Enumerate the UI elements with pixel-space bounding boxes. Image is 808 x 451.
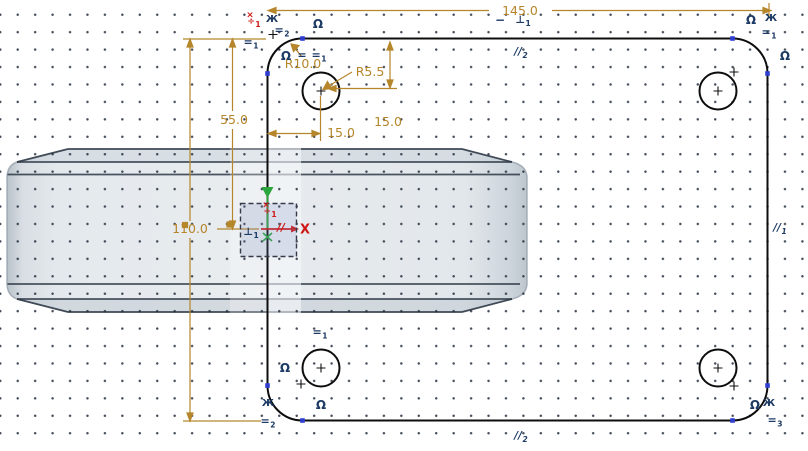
constraint-parallel-x-axis-icon[interactable]: // (277, 223, 285, 234)
x-axis-label[interactable]: X (300, 224, 310, 237)
constraint-tangent-icon[interactable]: Ω (313, 18, 323, 30)
constraint-symmetry-icon[interactable]: Ж (765, 14, 777, 24)
constraint-equal-icon[interactable]: = (297, 50, 306, 61)
constraint-parallel-icon[interactable]: //1 (773, 223, 786, 236)
constraint-horizontal-icon[interactable]: − (495, 14, 505, 26)
constraint-tangent-icon[interactable]: Ω (750, 399, 760, 411)
constraint-equal-icon[interactable]: =1 (244, 36, 259, 50)
constraint-parallel-icon[interactable]: //2 (514, 47, 527, 60)
constraint-equal-icon[interactable]: =2 (275, 24, 290, 38)
constraint-perpendicular-icon[interactable]: ⊥1 (515, 15, 530, 28)
constraint-symmetry-icon[interactable]: Ж (763, 399, 775, 409)
constraint-equal-icon[interactable]: =1 (762, 26, 777, 40)
constraint-parallel-icon[interactable]: //2 (514, 431, 527, 444)
constraint-perpendicular-icon[interactable]: ⊥1 (243, 227, 258, 240)
constraint-tangent-icon[interactable]: Ω (316, 399, 326, 411)
constraint-symmetric-icon[interactable]: ÷1 (263, 208, 276, 219)
constraint-tangent-icon[interactable]: Ω (780, 50, 790, 62)
constraint-tangent-icon[interactable]: Ω (280, 362, 290, 374)
dimension-half-height-label[interactable]: 55.0 (220, 114, 248, 127)
constraint-symmetry-icon[interactable]: Ж (262, 399, 274, 409)
dimension-hole-x-label[interactable]: 15.0 (327, 127, 355, 140)
constraint-equal-icon[interactable]: =3 (768, 414, 783, 428)
constraint-tangent-icon[interactable]: Ω (281, 50, 291, 62)
constraint-equal-icon[interactable]: =2 (261, 415, 276, 429)
sketcher-viewport[interactable]: 145.0110.055.015.015.0R5.5R10.0ΩΩΩΩΩΩΩЖЖ… (0, 0, 808, 451)
annotation-layer: 145.0110.055.015.015.0R5.5R10.0ΩΩΩΩΩΩΩЖЖ… (0, 0, 808, 451)
constraint-equal-icon[interactable]: =1 (313, 326, 328, 340)
constraint-equal-icon[interactable]: =1 (312, 49, 327, 63)
constraint-tangent-icon[interactable]: Ω (746, 14, 756, 26)
dimension-hole-y-label[interactable]: 15.0 (374, 116, 402, 129)
dimension-hole-radius-label[interactable]: R5.5 (356, 66, 385, 79)
constraint-symmetric-icon[interactable]: ÷1 (247, 18, 260, 29)
dimension-height-label[interactable]: 110.0 (172, 223, 208, 236)
